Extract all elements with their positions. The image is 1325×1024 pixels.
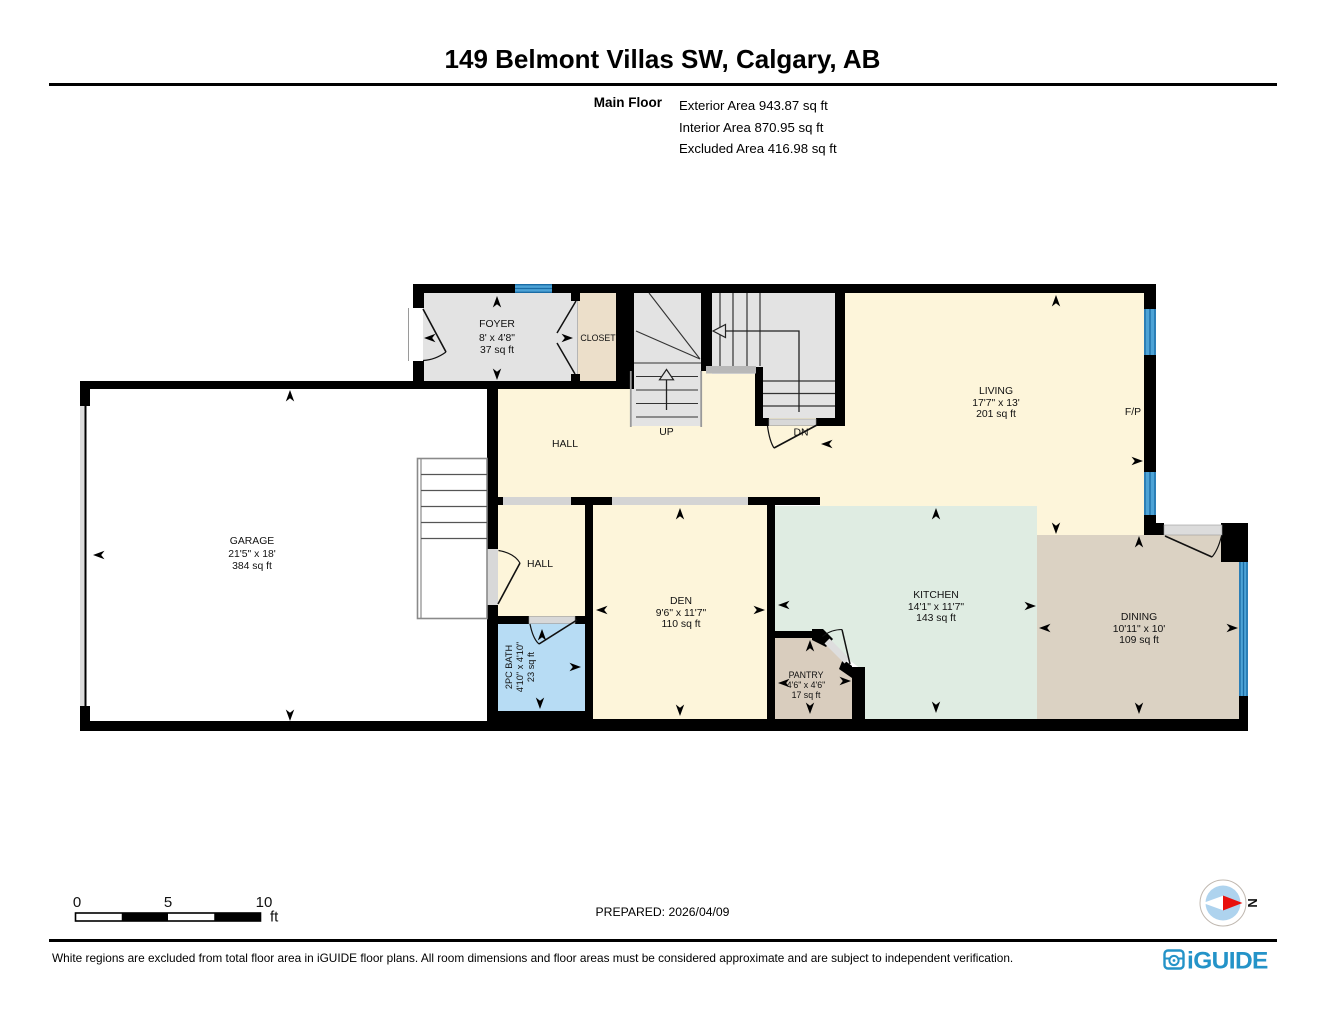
svg-text:17 sq ft: 17 sq ft — [792, 690, 821, 700]
svg-text:HALL: HALL — [527, 559, 553, 570]
svg-text:LIVING: LIVING — [979, 386, 1013, 397]
svg-text:N: N — [1245, 898, 1260, 907]
svg-text:17'7" x 13': 17'7" x 13' — [972, 398, 1020, 409]
svg-text:0: 0 — [73, 894, 81, 911]
svg-text:4'10" x 4'10": 4'10" x 4'10" — [515, 642, 525, 692]
svg-text:2PC BATH: 2PC BATH — [504, 645, 514, 689]
svg-text:14'1" x 11'7": 14'1" x 11'7" — [908, 602, 965, 613]
svg-text:109 sq ft: 109 sq ft — [1119, 635, 1159, 646]
svg-text:UP: UP — [659, 427, 674, 438]
svg-text:FOYER: FOYER — [479, 319, 515, 330]
svg-text:9'6" x 11'7": 9'6" x 11'7" — [656, 608, 707, 619]
svg-text:DINING: DINING — [1121, 612, 1157, 623]
svg-text:21'5" x 18': 21'5" x 18' — [228, 549, 276, 560]
svg-text:DN: DN — [793, 428, 808, 439]
svg-text:10'11" x 10': 10'11" x 10' — [1113, 624, 1166, 635]
svg-text:5: 5 — [164, 894, 172, 911]
svg-text:8' x 4'8": 8' x 4'8" — [479, 333, 515, 344]
svg-text:110 sq ft: 110 sq ft — [661, 619, 700, 630]
svg-text:ft: ft — [270, 909, 279, 926]
svg-text:HALL: HALL — [552, 439, 578, 450]
svg-text:KITCHEN: KITCHEN — [913, 590, 959, 601]
svg-text:143 sq ft: 143 sq ft — [916, 613, 956, 624]
svg-text:384 sq ft: 384 sq ft — [232, 561, 272, 572]
svg-text:4'6" x 4'6": 4'6" x 4'6" — [787, 680, 825, 690]
svg-text:CLOSET: CLOSET — [580, 333, 616, 343]
svg-text:PANTRY: PANTRY — [789, 670, 824, 680]
svg-text:GARAGE: GARAGE — [230, 536, 275, 547]
svg-text:DEN: DEN — [670, 596, 692, 607]
svg-text:37 sq ft: 37 sq ft — [480, 345, 514, 356]
svg-text:23 sq ft: 23 sq ft — [526, 651, 536, 682]
svg-text:iGUIDE: iGUIDE — [1187, 948, 1268, 975]
svg-text:201 sq ft: 201 sq ft — [976, 409, 1016, 420]
svg-text:F/P: F/P — [1125, 407, 1141, 418]
